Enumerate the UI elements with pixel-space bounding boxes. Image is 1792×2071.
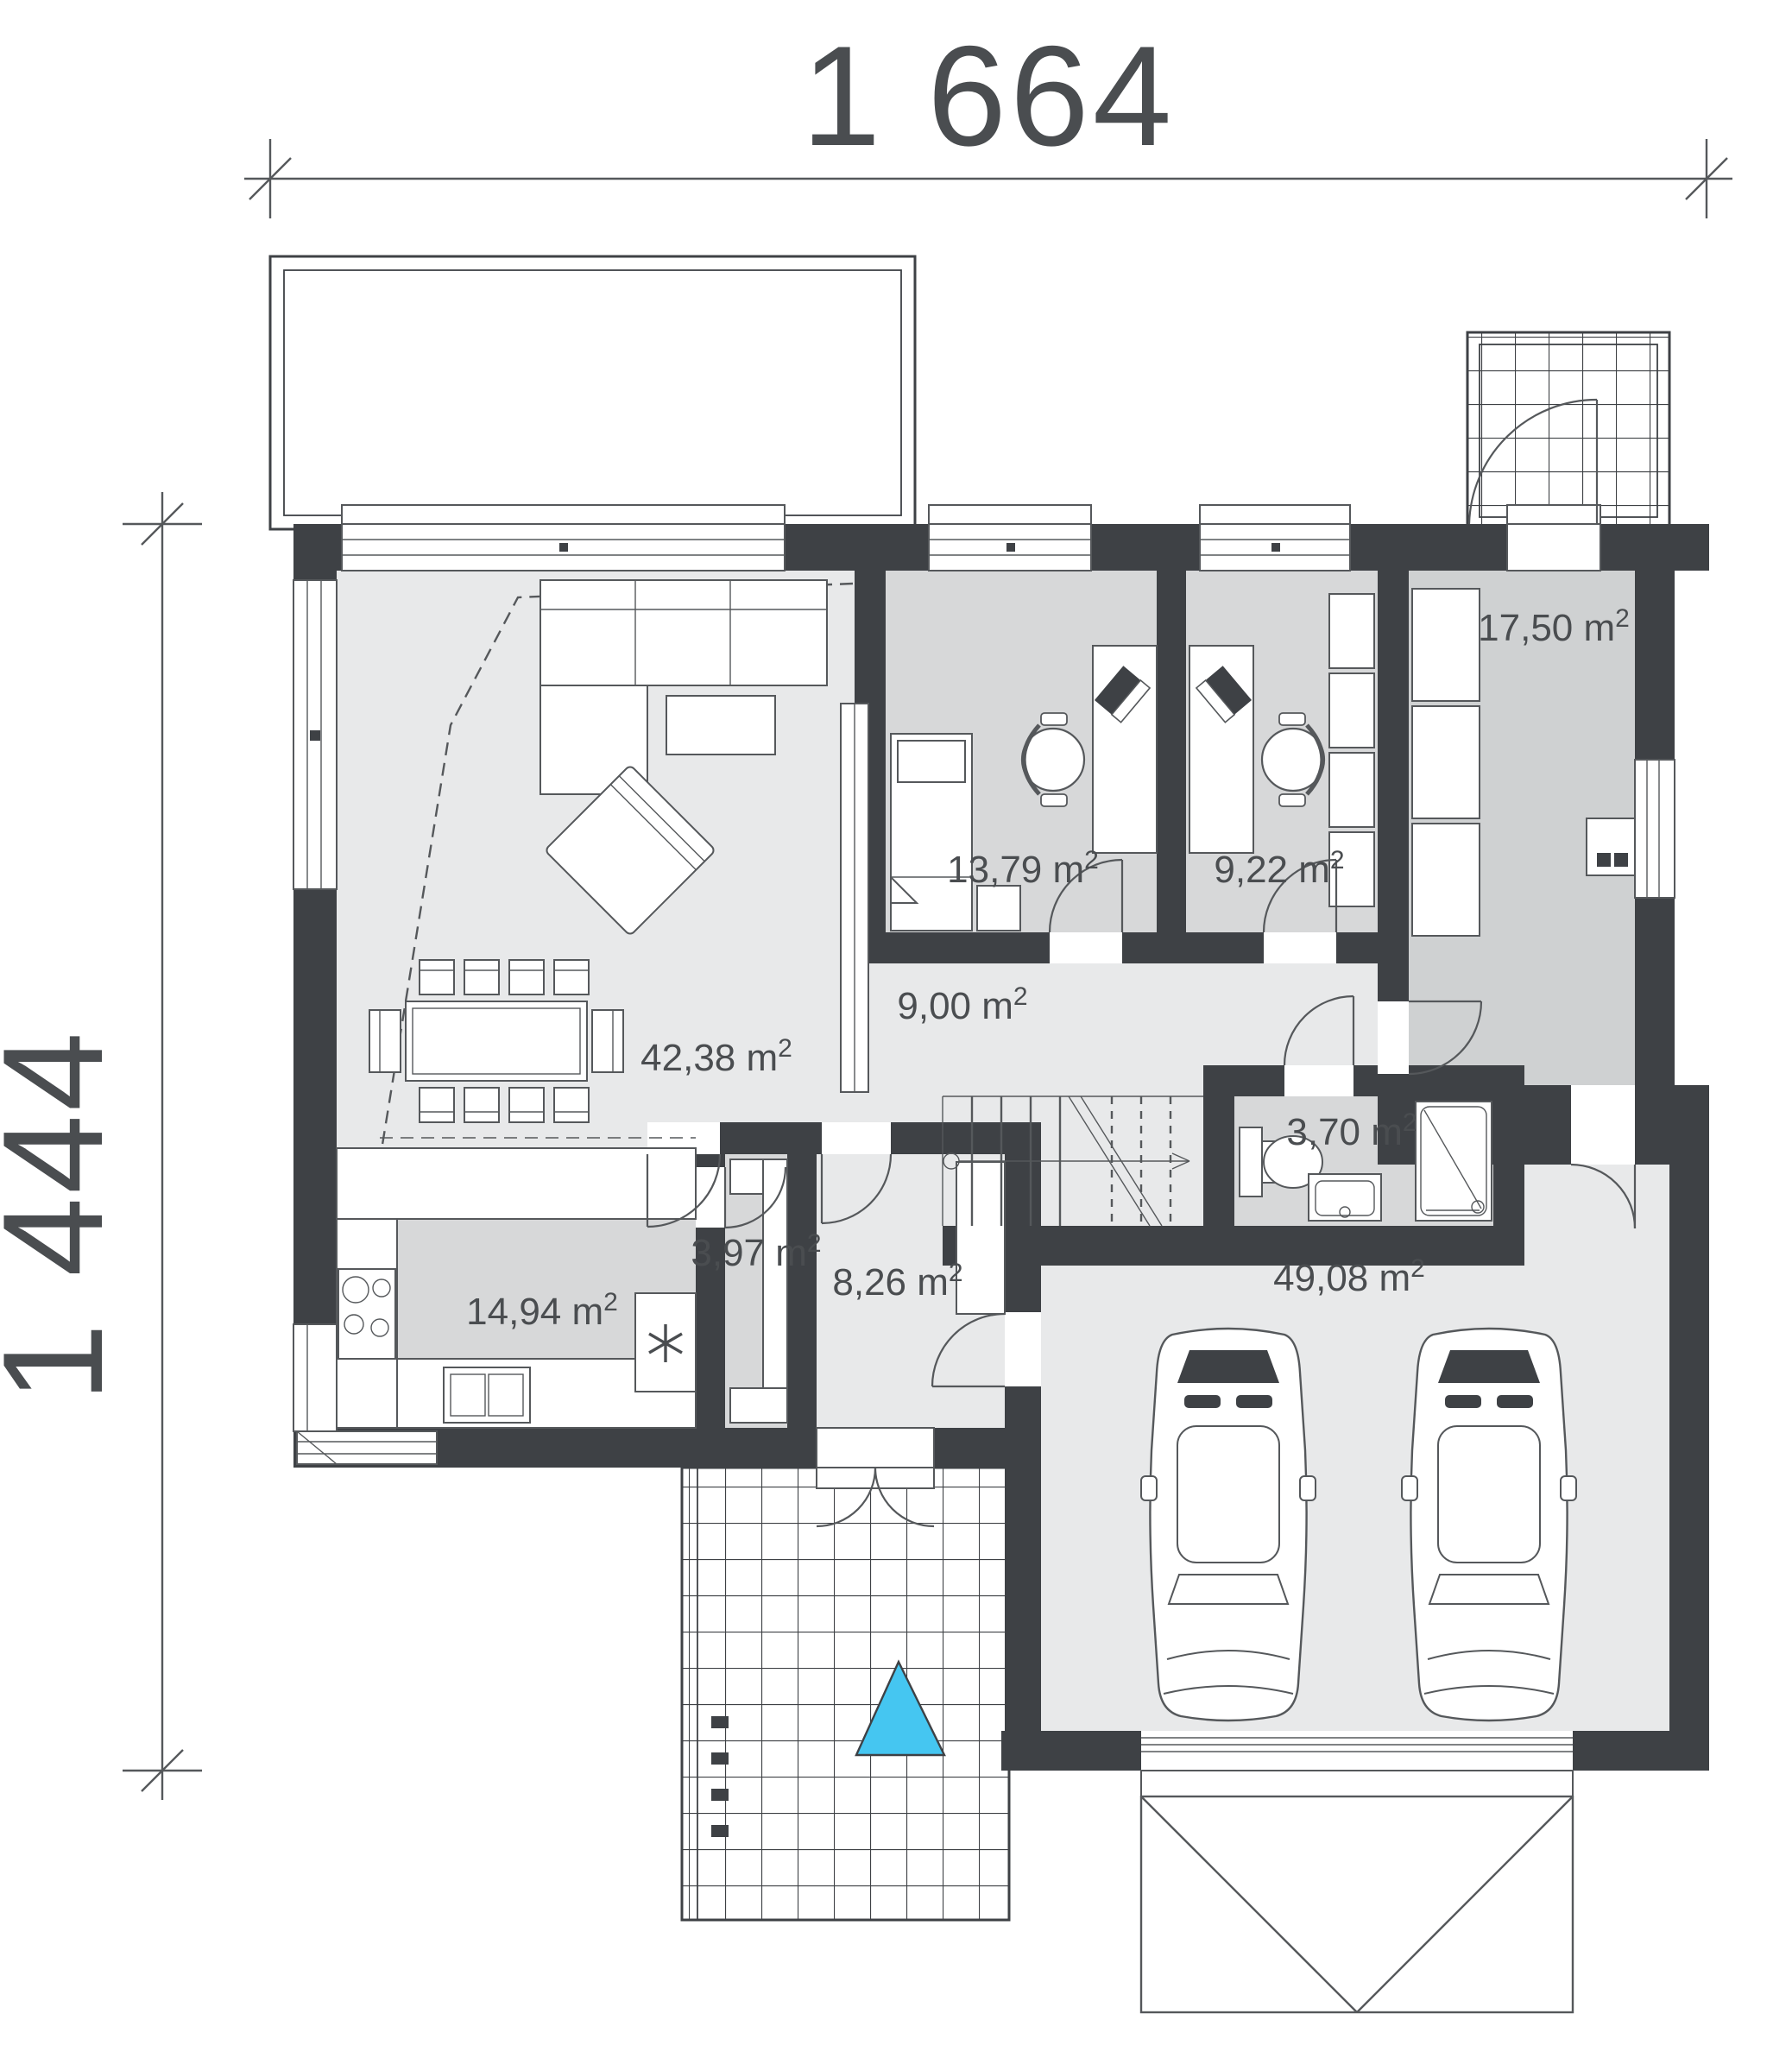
room-label-bedroom-17: 17,50 m2 — [1478, 604, 1630, 649]
terrace-top-left — [270, 256, 915, 529]
sink — [1309, 1174, 1381, 1221]
front-door-opening — [817, 1428, 934, 1468]
wall-unit — [1587, 818, 1635, 875]
door-opening — [1005, 1312, 1041, 1386]
room-label-pantry: 3,97 m2 — [691, 1229, 821, 1274]
sliding-door — [841, 704, 868, 1092]
step-marker — [711, 1825, 729, 1837]
step-marker — [711, 1789, 729, 1801]
dimension-height-value: 1 444 — [0, 1029, 132, 1403]
wardrobe — [1412, 589, 1480, 936]
kitchen-sink — [444, 1367, 530, 1423]
terrace-door-sill — [1507, 505, 1600, 524]
cooktop — [338, 1269, 395, 1359]
bedroom-17-window — [1635, 760, 1675, 898]
floor-plan: 42,38 m2 13,79 m2 9,22 m2 17,50 m2 9,00 … — [0, 0, 1792, 2071]
pantry-shelf — [730, 1388, 787, 1423]
pantry-shelf — [763, 1159, 787, 1423]
room-label-bedroom-9: 9,22 m2 — [1214, 846, 1344, 891]
entry-wardrobe — [956, 1162, 1005, 1314]
terrace-front — [682, 1468, 1009, 1920]
top-dimension: 1 664 — [244, 16, 1732, 218]
entry-hall — [956, 1162, 1005, 1314]
floor-plan-page: 42,38 m2 13,79 m2 9,22 m2 17,50 m2 9,00 … — [0, 0, 1792, 2071]
living-side-window — [293, 580, 337, 889]
left-dimension: 1 444 — [0, 492, 202, 1800]
nightstand — [977, 886, 1020, 931]
door-opening — [1571, 1085, 1635, 1165]
garage-door — [1141, 1731, 1573, 1796]
bedroom-9-window — [1200, 505, 1350, 571]
room-label-kitchen: 14,94 m2 — [466, 1288, 618, 1333]
shower — [1416, 1102, 1492, 1221]
coffee-table — [666, 696, 775, 755]
room-label-living: 42,38 m2 — [640, 1034, 792, 1079]
room-label-entry: 8,26 m2 — [832, 1259, 962, 1304]
door-opening — [1050, 932, 1122, 963]
door-opening — [822, 1122, 891, 1154]
kitchen-counter-top — [337, 1148, 696, 1219]
door-opening — [1378, 1001, 1409, 1074]
dimension-width-value: 1 664 — [802, 16, 1176, 175]
door-opening — [1264, 932, 1336, 963]
room-label-bathroom: 3,70 m2 — [1286, 1108, 1417, 1153]
terrace-top-right — [1467, 332, 1669, 529]
step-marker — [711, 1716, 729, 1728]
room-label-bedroom-13: 13,79 m2 — [947, 846, 1099, 891]
door-opening — [696, 1167, 725, 1228]
door-opening — [1284, 1065, 1353, 1096]
car — [1141, 1329, 1316, 1721]
room-label-garage: 49,08 m2 — [1273, 1254, 1425, 1299]
room-label-hall: 9,00 m2 — [897, 982, 1027, 1027]
driveway — [1141, 1796, 1573, 2012]
terrace-door-opening — [1507, 524, 1600, 571]
fridge — [635, 1293, 696, 1392]
living-window — [342, 505, 785, 571]
step-marker — [711, 1752, 729, 1765]
car — [1402, 1329, 1576, 1721]
bedroom-13-window — [929, 505, 1091, 571]
